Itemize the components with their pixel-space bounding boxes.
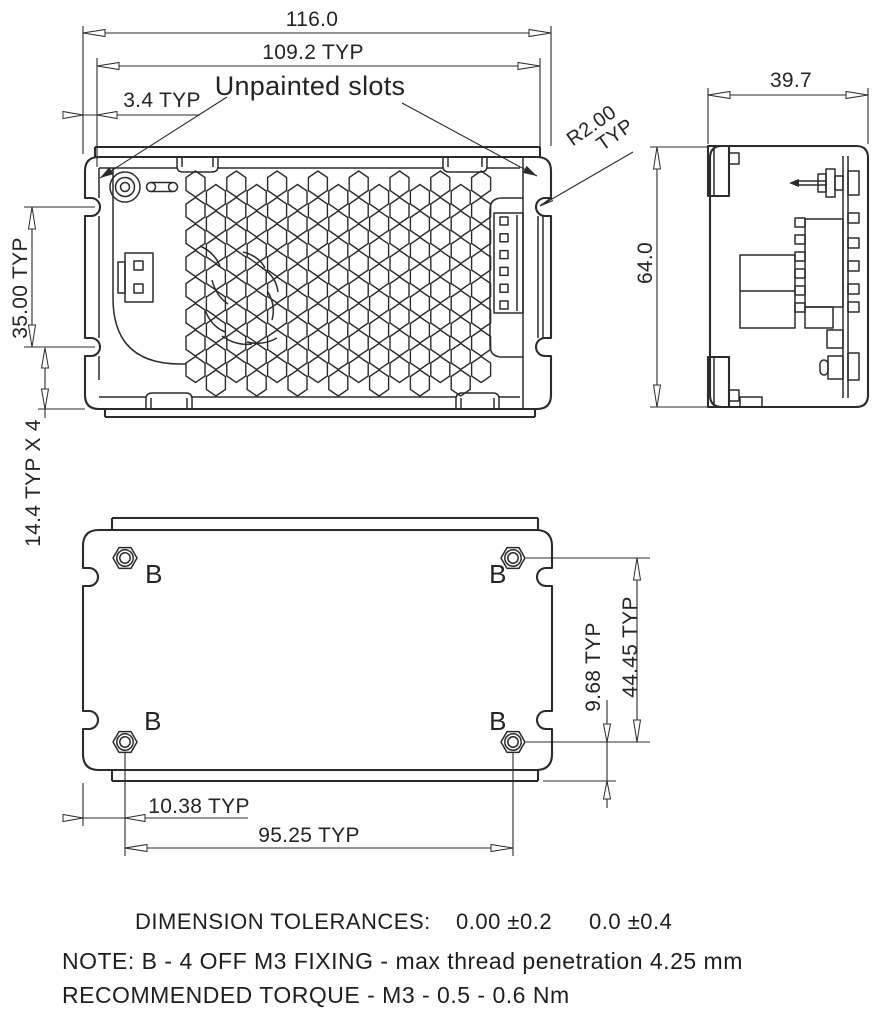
fixing-b-label: B (486, 708, 510, 734)
potentiometer (110, 172, 140, 202)
technical-drawing-canvas (0, 0, 886, 1024)
output-connector (490, 157, 543, 409)
mounting-nut (113, 548, 137, 569)
leader-lines (100, 97, 633, 206)
torque-note: RECOMMENDED TORQUE - M3 - 0.5 - 0.6 Nm (62, 983, 570, 1007)
fixing-b-label: B (142, 561, 166, 587)
terminal-block-side (740, 218, 843, 348)
hole-edge-horizontal-label: 10.38 TYP (147, 796, 251, 818)
fixing-b-label: B (486, 561, 510, 587)
dim-slot-pitch-label: 109.2 TYP (253, 42, 373, 64)
drawing-page: 116.0 109.2 TYP 3.4 TYP Unpainted slots … (0, 0, 886, 1024)
vent-pattern (186, 171, 491, 396)
input-connector (118, 253, 153, 302)
dim-overall-width-label: 116.0 (252, 9, 372, 31)
tolerance-value-2: 0.0 ±0.4 (589, 910, 672, 934)
mounting-nut (113, 732, 137, 753)
tolerances-title: DIMENSION TOLERANCES: (135, 910, 431, 934)
dim-foot-label: 14.4 TYP X 4 (23, 403, 45, 563)
pcb-pin-tabs (848, 213, 859, 312)
front-view (85, 147, 551, 417)
hole-edge-vertical-label: 9.68 TYP (583, 587, 605, 747)
hole-pitch-horizontal-label: 95.25 TYP (247, 825, 371, 847)
bottom-view (83, 518, 552, 781)
side-depth-label: 39.7 (741, 70, 841, 92)
side-height-label: 64.0 (635, 213, 657, 313)
hole-pitch-vertical-label: 44.45 TYP (620, 567, 642, 727)
side-view (708, 146, 868, 407)
fixing-b-label: B (141, 708, 165, 734)
dim-slot-vertical-pitch-label: 35.00 TYP (10, 208, 32, 368)
fixing-note: NOTE: B - 4 OFF M3 FIXING - max thread p… (62, 949, 743, 973)
fixing-bolt-side (820, 353, 859, 380)
dim-slot-offset-label: 3.4 TYP (112, 90, 212, 112)
tolerance-value-1: 0.00 ±0.2 (456, 910, 552, 934)
potentiometer-side (789, 169, 859, 197)
unpainted-slots-callout: Unpainted slots (198, 72, 422, 100)
jumper-pins (147, 183, 178, 192)
